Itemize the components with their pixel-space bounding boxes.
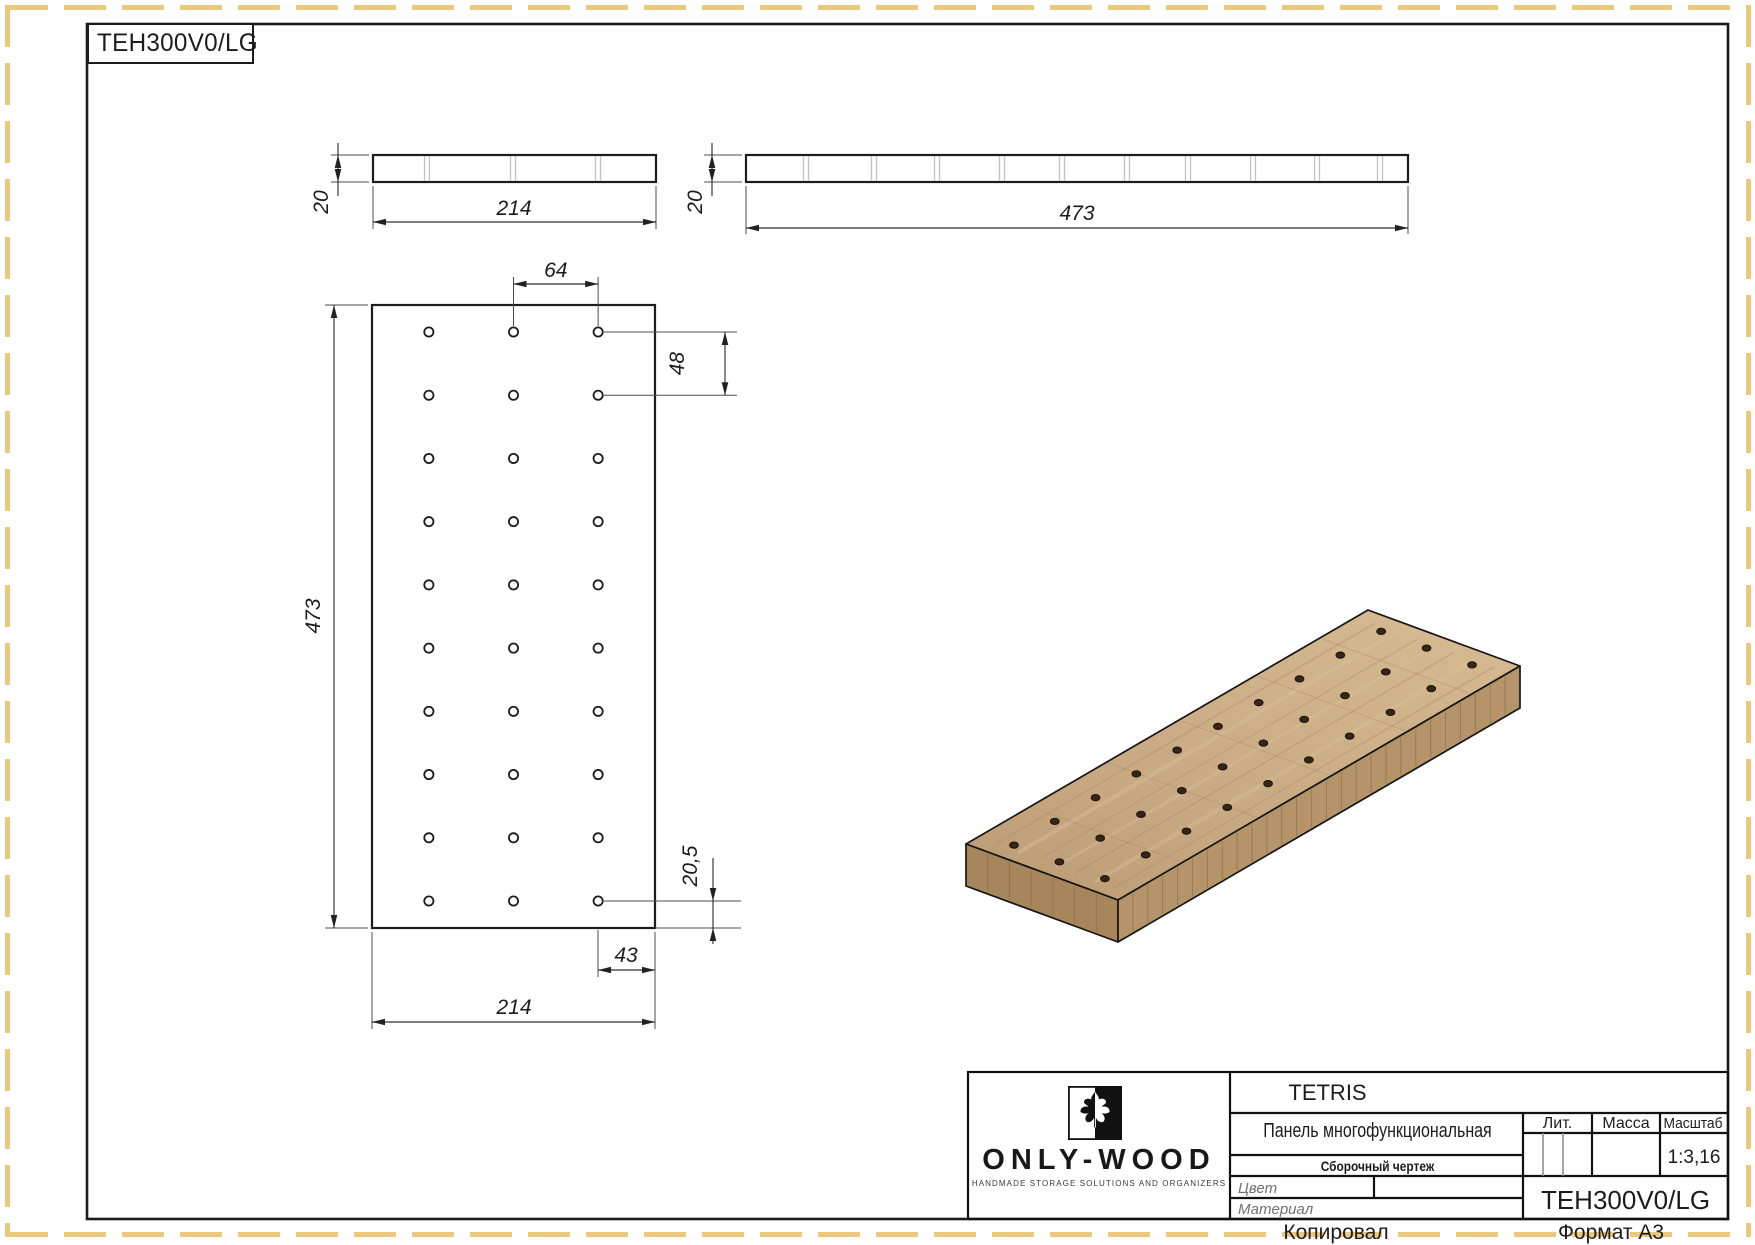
panel3d-hole (1096, 835, 1105, 841)
dim-arrow (709, 169, 716, 182)
front-view-hole (594, 454, 603, 463)
panel3d-hole (1295, 676, 1304, 682)
front-view-hole (594, 391, 603, 400)
dim-arrow (722, 332, 729, 345)
front-view-hole (594, 896, 603, 905)
title-part-name: Панель многофункциональная (1261, 1120, 1494, 1143)
panel3d-hole (1377, 628, 1386, 634)
dim-length-top: 473 (1059, 202, 1094, 225)
footer-format-label: Формат А3 (1521, 1221, 1701, 1245)
dim-arrow (643, 219, 656, 226)
panel3d-hole (1300, 716, 1309, 722)
title-series: TETRIS (1230, 1080, 1425, 1106)
panel3d-hole (1254, 700, 1263, 706)
title-material-label: Материал (1238, 1201, 1313, 1218)
dim-arrow (710, 928, 717, 941)
panel3d-hole (1173, 747, 1182, 753)
panel3d-hole (1218, 764, 1227, 770)
dim-bottom-margin: 20,5 (679, 845, 702, 887)
dim-arrow (710, 888, 717, 901)
panel3d-hole (1055, 859, 1064, 865)
front-view-hole (424, 517, 433, 526)
dim-width-top: 214 (495, 197, 531, 220)
panel3d-hole (1341, 693, 1350, 699)
panel3d-hole (1050, 818, 1059, 824)
panel3d-hole (1100, 876, 1109, 882)
title-part-code: TEH300V0/LG (1523, 1185, 1728, 1216)
dim-arrow (373, 219, 386, 226)
panel3d-hole (1468, 662, 1477, 668)
front-view-hole (594, 833, 603, 842)
panel3d-hole (1141, 852, 1150, 858)
dim-col-spacing: 64 (544, 259, 567, 282)
dim-arrow (335, 155, 342, 168)
drawing-canvas: 2021420473644847320,543214 (0, 0, 1755, 1241)
panel3d-hole (1264, 781, 1273, 787)
title-scale-label: Масштаб (1661, 1115, 1725, 1132)
front-view-hole (509, 391, 518, 400)
title-lit-label: Лит. (1523, 1115, 1592, 1133)
dim-width-bottom: 214 (495, 996, 531, 1019)
front-view-hole (424, 833, 433, 842)
panel3d-hole (1345, 733, 1354, 739)
dim-arrow (372, 1019, 385, 1026)
panel3d-hole (1091, 795, 1100, 801)
front-view-hole (509, 580, 518, 589)
brand-wordmark: ONLY-WOOD (968, 1144, 1230, 1177)
title-scale-value: 1:3,16 (1660, 1147, 1728, 1169)
dim-arrow (642, 967, 655, 974)
panel3d-hole (1259, 740, 1268, 746)
dim-arrow (746, 225, 759, 232)
drawing-page: { "stamp_label": "TEH300V0/LG", "dims": … (0, 0, 1755, 1241)
dim-arrow (722, 382, 729, 395)
front-view-hole (594, 707, 603, 716)
front-view-hole (424, 644, 433, 653)
title-mass-label: Масса (1592, 1115, 1660, 1133)
panel3d-hole (1336, 652, 1345, 658)
front-view-hole (424, 770, 433, 779)
dim-side-margin: 43 (614, 944, 638, 967)
dim-arrow (598, 967, 611, 974)
side-view-length-outline (746, 155, 1408, 182)
panel3d-hole (1427, 686, 1436, 692)
front-view-hole (509, 833, 518, 842)
panel3d-hole (1137, 811, 1146, 817)
front-view-hole (509, 896, 518, 905)
front-view-hole (594, 644, 603, 653)
front-view-hole (594, 327, 603, 336)
title-color-label: Цвет (1238, 1180, 1277, 1197)
front-view-hole (509, 327, 518, 336)
panel3d-hole (1381, 669, 1390, 675)
front-view-hole (424, 327, 433, 336)
panel3d-hole (1386, 709, 1395, 715)
front-view-hole (509, 644, 518, 653)
brand-tagline: HANDMADE STORAGE SOLUTIONS AND ORGANIZER… (968, 1179, 1230, 1188)
sheet-frame (87, 24, 1728, 1219)
dim-arrow (585, 281, 598, 288)
panel3d-hole (1214, 723, 1223, 729)
footer-copied-label: Копировал (1246, 1221, 1426, 1245)
front-view-hole (594, 517, 603, 526)
front-view-hole (509, 454, 518, 463)
dim-length-left: 473 (302, 598, 325, 633)
front-view-hole (594, 770, 603, 779)
dim-arrow (335, 169, 342, 182)
panel3d-hole (1132, 771, 1141, 777)
front-view-hole (509, 707, 518, 716)
dim-arrow (642, 1019, 655, 1026)
front-view-hole (594, 580, 603, 589)
panel3d-hole (1304, 757, 1313, 763)
onlywood-leaf-icon (1066, 1086, 1124, 1140)
panel3d-hole (1223, 804, 1232, 810)
dim-arrow (1395, 225, 1408, 232)
dim-thickness-right: 20 (684, 190, 707, 215)
panel3d-hole (1182, 828, 1191, 834)
panel3d-hole (1422, 645, 1431, 651)
dim-row-spacing: 48 (666, 352, 689, 376)
side-view-width-outline (373, 155, 656, 182)
title-doc-type: Сборочный чертеж (1254, 1158, 1501, 1174)
dim-arrow (331, 305, 338, 318)
panel3d-hole (1177, 788, 1186, 794)
front-view-hole (424, 896, 433, 905)
dim-arrow (709, 155, 716, 168)
dim-thickness-left: 20 (310, 190, 333, 215)
panel3d-hole (1010, 842, 1019, 848)
dim-arrow (514, 281, 527, 288)
front-view-hole (424, 391, 433, 400)
front-view-hole (509, 770, 518, 779)
front-view-hole (424, 707, 433, 716)
drawing-code-stamp: TEH300V0/LG (87, 23, 254, 64)
front-view-hole (424, 580, 433, 589)
front-view-hole (424, 454, 433, 463)
dim-arrow (331, 915, 338, 928)
front-view-hole (509, 517, 518, 526)
drawing-code-text: TEH300V0/LG (97, 29, 258, 58)
